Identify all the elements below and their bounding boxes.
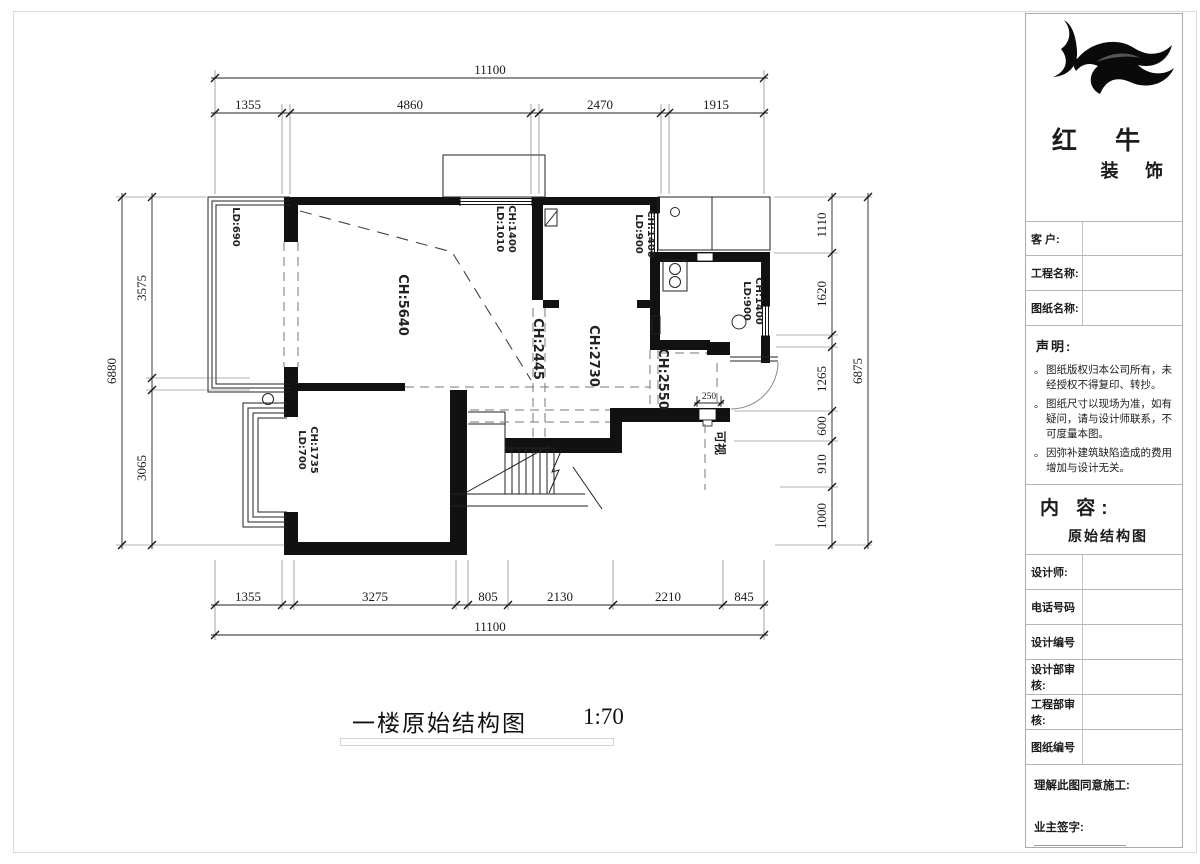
flue-notch: [697, 253, 713, 261]
brand-subname: 装 饰: [1026, 157, 1182, 183]
row-engineering-review: 工程部审核:: [1026, 694, 1182, 729]
brand-name: 红 牛: [1026, 121, 1182, 157]
label-top-window-ld: LD:1010: [494, 206, 505, 253]
dim-left-total: 6880: [104, 358, 119, 384]
drawing-name-value[interactable]: [1082, 291, 1182, 325]
plan-scale: 1:70: [583, 704, 624, 730]
dim-top-3: 1915: [703, 97, 729, 112]
dim-right-1: 1620: [814, 281, 829, 307]
dim-bottom-total: 11100: [474, 619, 506, 634]
dim-top-2: 2470: [587, 97, 613, 112]
intercom-button: [703, 420, 712, 426]
title-underline-bar: [340, 738, 614, 746]
project-value[interactable]: [1082, 256, 1182, 290]
owner-sign-row: 业主签字:: [1034, 819, 1176, 849]
stairs: [450, 446, 602, 509]
entry-door-arc: [731, 362, 778, 409]
design-no-label: 设计编号: [1026, 634, 1082, 650]
customer-label: 客 户:: [1026, 231, 1082, 247]
dim-right-0: 1110: [814, 212, 829, 237]
label-balcony: LD:690: [230, 207, 241, 247]
brand-logo-cell: 红 牛 装 饰: [1026, 14, 1182, 221]
label-intercom: 可视: [713, 431, 728, 455]
dim-right-4: 910: [814, 454, 829, 474]
label-top-window-ch: CH:1400: [506, 205, 517, 253]
owner-signature-line[interactable]: [1034, 835, 1126, 846]
phone-value[interactable]: [1082, 590, 1182, 624]
signature-box: 理解此图同意施工: 业主签字:: [1026, 764, 1182, 847]
label-bedroom-window-ch: CH:1400: [645, 210, 656, 258]
dim-bottom-1: 3275: [362, 589, 388, 604]
drawing-no-value[interactable]: [1082, 730, 1182, 764]
statement-item: 因弥补建筑缺陷造成的费用增加与设计无关。: [1036, 446, 1176, 475]
dim-right-5: 1000: [814, 503, 829, 529]
floor-plan-canvas: 11100 1355 4860 2470 1915 1355 3275 805 …: [0, 0, 1200, 864]
row-drawing-name: 图纸名称:: [1026, 290, 1182, 325]
design-review-label: 设计部审核:: [1026, 661, 1082, 693]
plan-title: 一楼原始结构图: [352, 704, 527, 738]
balcony-window-outer: [208, 197, 290, 392]
dim-bottom-4: 2210: [655, 589, 681, 604]
designer-label: 设计师:: [1026, 564, 1082, 580]
dim-top-total: 11100: [474, 62, 506, 77]
content-box: 内 容: 原始结构图: [1026, 484, 1182, 554]
label-kitchen-window-ld: LD:900: [741, 281, 752, 321]
dim-top-1: 4860: [397, 97, 423, 112]
label-kitchen-passage-ch: CH:2550: [655, 348, 670, 410]
statement-box: 声明: 图纸版权归本公司所有，未经授权不得复印、转抄。 图纸尺寸以现场为准，如有…: [1026, 325, 1182, 484]
dim-top-0: 1355: [235, 97, 261, 112]
top-flue-box: [443, 155, 545, 197]
dim-bottom-2: 805: [478, 589, 498, 604]
dim-left-0: 3575: [134, 275, 149, 301]
row-project: 工程名称:: [1026, 255, 1182, 290]
drawing-sheet: 11100 1355 4860 2470 1915 1355 3275 805 …: [0, 0, 1200, 864]
room-labels: LD:690 CH:5640 LD:1010 CH:1400 LD:900 CH…: [230, 205, 764, 474]
row-design-review: 设计部审核:: [1026, 659, 1182, 694]
statement-item: 图纸尺寸以现场为准，如有疑问，请与设计师联系，不可度量本图。: [1036, 397, 1176, 441]
design-no-value[interactable]: [1082, 625, 1182, 659]
label-living-ch: CH:5640: [395, 274, 410, 336]
row-design-no: 设计编号: [1026, 624, 1182, 659]
engineering-review-label: 工程部审核:: [1026, 696, 1082, 728]
dimension-text: 11100 1355 4860 2470 1915 1355 3275 805 …: [104, 62, 865, 634]
title-block: 红 牛 装 饰 客 户: 工程名称: 图纸名称: 声明: 图纸版权归本公司所有，…: [1025, 13, 1183, 848]
label-kitchen-window-ch: CH:1400: [753, 277, 764, 325]
stove: [663, 260, 687, 291]
label-bedroom-window-ld: LD:900: [633, 214, 644, 254]
drawing-name-label: 图纸名称:: [1026, 300, 1082, 316]
row-phone: 电话号码: [1026, 589, 1182, 624]
row-customer: 客 户:: [1026, 221, 1182, 255]
label-passage-ch: CH:2445: [530, 318, 545, 380]
designer-value[interactable]: [1082, 555, 1182, 589]
design-review-value[interactable]: [1082, 660, 1182, 694]
engineering-review-value[interactable]: [1082, 695, 1182, 729]
dim-right-3: 600: [814, 416, 829, 436]
window-top: [460, 197, 532, 206]
row-drawing-no: 图纸编号: [1026, 729, 1182, 764]
terrace-box: [658, 197, 770, 250]
content-heading: 内 容:: [1040, 493, 1176, 520]
project-label: 工程名称:: [1026, 265, 1082, 281]
label-bay-window-ch: CH:1735: [308, 426, 319, 474]
statement-list: 图纸版权归本公司所有，未经授权不得复印、转抄。 图纸尺寸以现场为准，如有疑问，请…: [1036, 363, 1176, 476]
bay-window-outer: [243, 403, 287, 527]
intercom-box: [699, 409, 716, 420]
stair-break-zigzag: [549, 451, 561, 493]
agree-label: 理解此图同意施工:: [1034, 777, 1176, 793]
dim-right-total: 6875: [850, 358, 865, 384]
bull-logo-icon: [1026, 14, 1182, 114]
dim-bottom-5: 845: [734, 589, 754, 604]
drawing-no-label: 图纸编号: [1026, 739, 1082, 755]
dim-bottom-3: 2130: [547, 589, 573, 604]
dim-right-2: 1265: [814, 366, 829, 392]
statement-item: 图纸版权归本公司所有，未经授权不得复印、转抄。: [1036, 363, 1176, 392]
floor-plan-walls: [284, 197, 770, 555]
label-bay-window-ld: LD:700: [296, 430, 307, 470]
phone-label: 电话号码: [1026, 599, 1082, 615]
dim-bottom-0: 1355: [235, 589, 261, 604]
statement-heading: 声明:: [1036, 336, 1176, 355]
content-value: 原始结构图: [1040, 526, 1176, 546]
customer-value[interactable]: [1082, 222, 1182, 255]
label-bedroom-ch: CH:2730: [586, 325, 601, 387]
row-designer: 设计师:: [1026, 554, 1182, 589]
dim-door-width: 250: [702, 392, 717, 402]
dim-left-1: 3065: [134, 455, 149, 481]
owner-sign-label: 业主签字:: [1034, 822, 1084, 834]
drain-pipe: [671, 208, 680, 217]
